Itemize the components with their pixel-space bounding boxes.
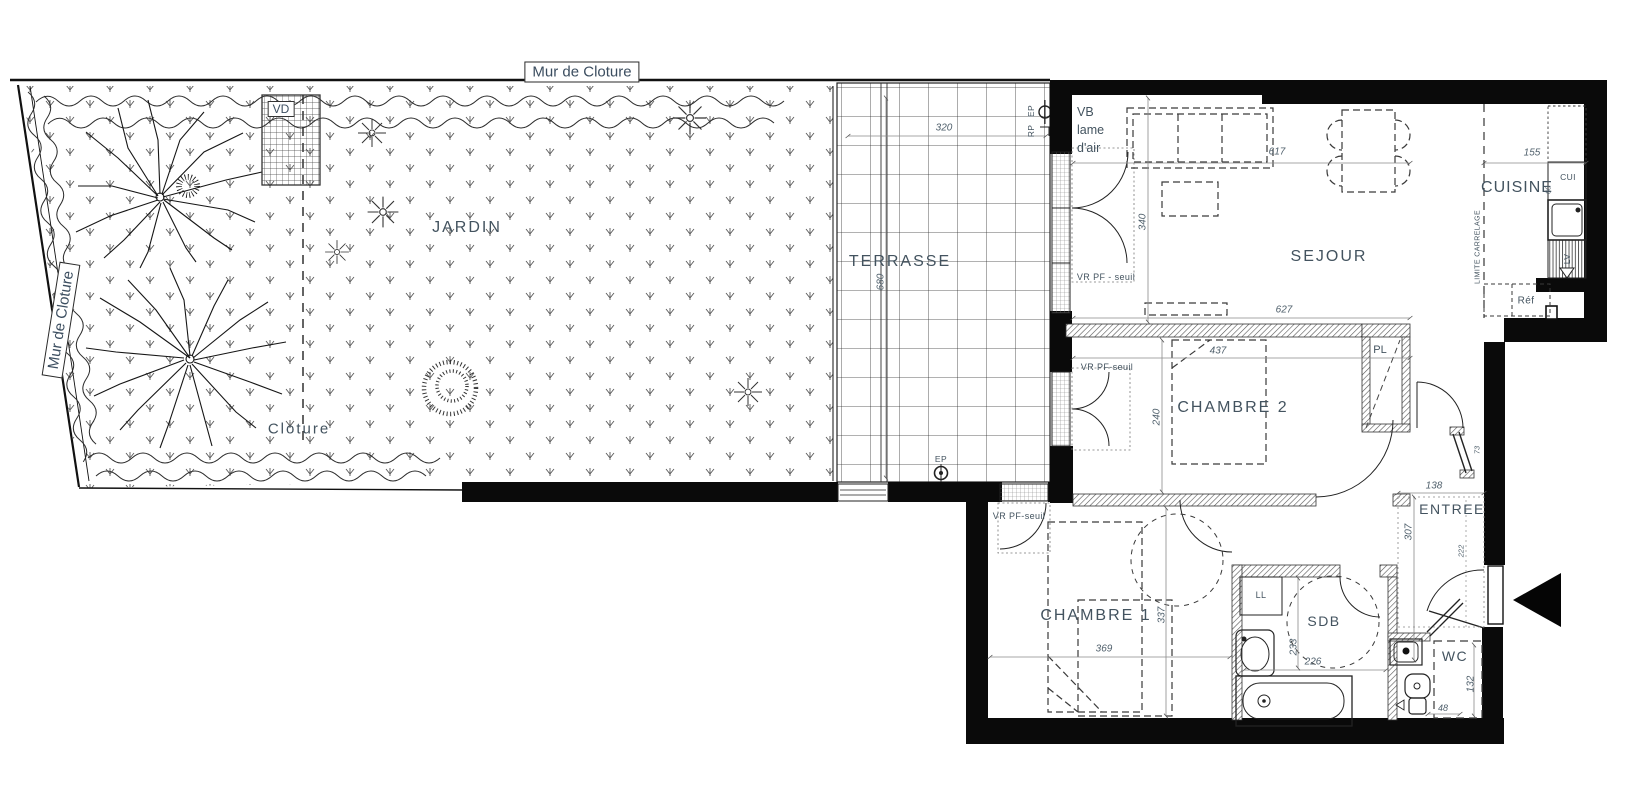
cui-label: CUI bbox=[1560, 172, 1576, 182]
dim-sejour-width2: 627 bbox=[1276, 305, 1293, 316]
ep-roof-label: EP bbox=[1026, 105, 1036, 117]
lv-label: LV bbox=[1562, 254, 1572, 265]
ref-label: Réf bbox=[1518, 296, 1535, 307]
entrance-arrow-icon bbox=[1513, 573, 1561, 627]
vent-icon bbox=[1546, 306, 1557, 319]
placard-label: PL bbox=[1373, 344, 1386, 358]
vr-pf-seuil-label-sejour: VR PF - seuil bbox=[1077, 272, 1135, 282]
cloture-label: Cloture bbox=[268, 421, 330, 438]
dim-cuisine-depth: 60 bbox=[1544, 186, 1553, 194]
dim-terrasse-width: 320 bbox=[936, 123, 953, 134]
dim-entree-nook: 222 bbox=[1457, 545, 1466, 558]
dim-entree-height: 307 bbox=[1404, 524, 1415, 541]
room-label-entree: ENTREE bbox=[1419, 501, 1485, 517]
dim-terrasse-height: 680 bbox=[876, 274, 887, 291]
vb-label-line3: d'air bbox=[1077, 141, 1100, 155]
vb-label-line2: lame bbox=[1077, 123, 1104, 137]
dim-wc-height: 132 bbox=[1466, 676, 1477, 693]
room-label-terrasse: TERRASSE bbox=[849, 253, 951, 271]
dim-hall-door: 73 bbox=[1473, 446, 1482, 454]
rp-label: RP bbox=[1026, 125, 1036, 138]
ll-label: LL bbox=[1256, 590, 1267, 600]
dim-chambre1-width: 369 bbox=[1096, 644, 1113, 655]
ep-terrace-label: EP bbox=[935, 454, 947, 464]
pl-text: PL bbox=[1373, 344, 1386, 356]
room-label-sdb: SDB bbox=[1307, 613, 1340, 629]
dim-cuisine-width: 155 bbox=[1524, 148, 1541, 159]
floor-plan: Mur de Cloture Mur de Cloture VD JARDIN … bbox=[0, 0, 1640, 800]
dim-sdb-height: 233 bbox=[1289, 639, 1300, 656]
dim-sejour-height: 340 bbox=[1138, 214, 1149, 231]
dim-chambre1-height: 337 bbox=[1157, 607, 1168, 624]
vr-pf-seuil-label-ch1: VR PF-seuil bbox=[993, 511, 1045, 521]
room-label-jardin: JARDIN bbox=[432, 219, 502, 237]
limite-carrelage-label: LIMITE CARRELAGE bbox=[1475, 210, 1482, 284]
dim-sejour-width: 617 bbox=[1269, 147, 1286, 158]
dim-sdb-width: 226 bbox=[1305, 657, 1322, 668]
room-label-chambre2: CHAMBRE 2 bbox=[1177, 399, 1288, 417]
dim-entree-width: 138 bbox=[1426, 481, 1443, 492]
room-label-wc: WC bbox=[1442, 648, 1468, 664]
room-label-cuisine: CUISINE bbox=[1481, 179, 1553, 197]
vd-label: VD bbox=[268, 101, 295, 117]
dim-chambre2-height: 240 bbox=[1152, 409, 1163, 426]
dim-chambre2-width: 437 bbox=[1210, 346, 1227, 357]
fence-label-top: Mur de Cloture bbox=[524, 62, 639, 83]
terrace bbox=[837, 83, 1051, 482]
room-label-chambre1: CHAMBRE 1 bbox=[1040, 607, 1151, 625]
floor-plan-drawing bbox=[0, 0, 1640, 800]
vb-label-line1: VB bbox=[1077, 105, 1094, 119]
dim-wc-width: 48 bbox=[1438, 703, 1448, 713]
vr-pf-seuil-label-ch2: VR PF-seuil bbox=[1081, 362, 1133, 372]
room-label-sejour: SEJOUR bbox=[1291, 248, 1368, 266]
